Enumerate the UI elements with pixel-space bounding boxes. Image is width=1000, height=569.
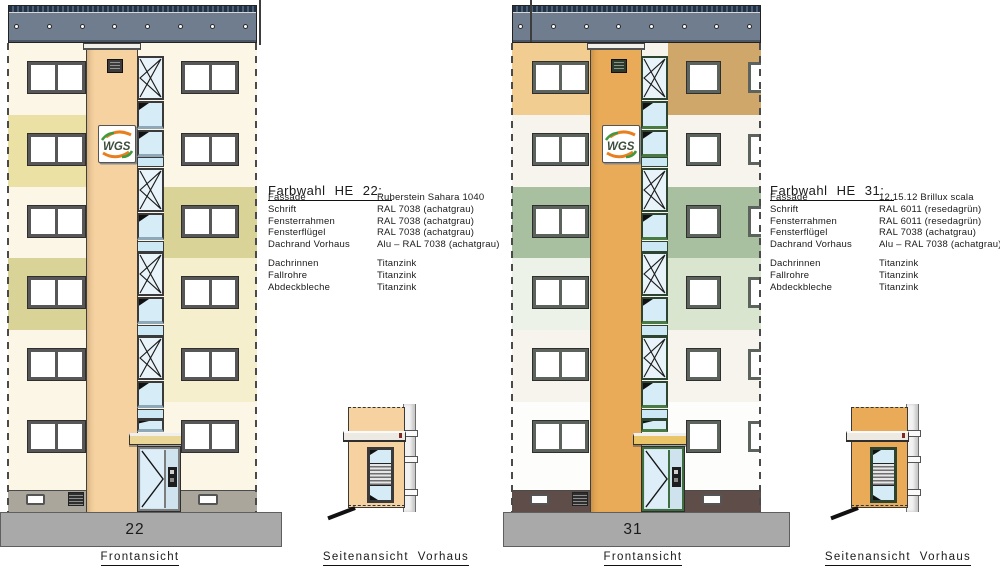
window-square [687,349,720,380]
spec-row-value: RAL 7038 (achatgrau) [879,227,976,239]
window-mullion [209,280,212,305]
window-mullion [209,209,212,234]
spec-row-label: Dachrinnen [268,258,377,270]
spec-row-label: Fensterrahmen [770,216,879,228]
window-mullion [55,280,58,305]
porch-window [870,447,897,503]
house-number: 31 [608,521,658,541]
window-double [28,349,85,380]
spec-row-value: Alu – RAL 7038 (achatgrau) [377,239,500,251]
spec-row-label: Abdeckbleche [770,282,879,294]
window-double [182,206,238,237]
intercom-dot [170,470,174,474]
roof-drain-dot [210,24,215,29]
glyph [643,421,666,429]
spec-row-value: Titanzink [377,282,416,294]
glyph [643,170,666,210]
spec-row-label: Fensterrahmen [268,216,377,228]
window-double [28,206,85,237]
door-intercom-panel [672,467,681,487]
entrance-door [642,447,684,511]
door-intercom-panel [168,467,177,487]
svg-text:WGS: WGS [103,141,131,153]
stair-window-turn [641,252,668,296]
spec-row-value: Titanzink [879,258,918,270]
spec-row: FassadeRuberstein Sahara 1040 [268,192,500,204]
window-mullion [559,280,562,305]
spec-row: Dachrand VorhausAlu – RAL 7038 (achatgra… [770,239,1000,251]
glyph [370,450,391,500]
spec-row-value: Titanzink [879,282,918,294]
wgs-logo: WGS [98,125,136,163]
spec-row-value: RAL 7038 (achatgrau) [377,216,474,228]
glyph [139,338,162,378]
spec-row-value: Ruberstein Sahara 1040 [377,192,484,204]
spec-row-label: Dachrinnen [770,258,879,270]
stair-landing-light [641,409,668,419]
window-square [687,206,720,237]
side-view-label: Seitenansicht Vorhaus [803,551,993,567]
stair-window-fixed [137,419,164,432]
spec-row: FensterflügelRAL 7038 (achatgrau) [770,227,1000,239]
porch-canopy [343,431,406,442]
glyph [643,103,666,126]
stair-landing-light [137,325,164,336]
vent-grid [614,62,624,70]
glyph [643,383,666,405]
roof-drain-dot [616,24,621,29]
front-view-label: Frontansicht [60,551,220,567]
glyph [139,132,162,154]
window-mullion [55,137,58,162]
basement-vent-grille [572,492,588,506]
stair-landing-light [137,409,164,419]
window-double [533,134,588,165]
spec-row: AbdeckblecheTitanzink [268,282,500,294]
spec-row: FensterrahmenRAL 6011 (resedagrün) [770,216,1000,228]
window-square [687,277,720,308]
stair-window-fixed [641,297,668,324]
glyph [141,450,164,508]
spec-row-value: Titanzink [879,270,918,282]
roof-drain-dot [178,24,183,29]
spec-row-value: Titanzink [377,258,416,270]
spec-row: SchriftRAL 7038 (achatgrau) [268,204,500,216]
window-mullion [559,209,562,234]
basement-window [198,494,218,505]
window-mullion [55,65,58,90]
stair-window-turn [641,56,668,100]
facade-edge-dashed-right [759,43,761,512]
stair-window-turn [137,336,164,380]
glyph [139,170,162,210]
elevation-drawing-canvas: Farbwahl HE 22: FassadeRuberstein Sahara… [0,0,1000,569]
roof-drain-dot [649,24,654,29]
window-double [28,62,85,93]
spec-row-value: Alu – RAL 7038 (achatgrau) [879,239,1000,251]
intercom-dot [170,478,174,482]
glyph [643,299,666,321]
basement-window [702,494,722,505]
roof-drain-dot [243,24,248,29]
window-mullion [209,352,212,377]
stair-window-turn [137,168,164,212]
spec-row-label: Fallrohre [268,270,377,282]
spec-row-label: Schrift [770,204,879,216]
stair-window-fixed [641,130,668,157]
front-view-label-text: Frontansicht [101,551,180,566]
window-double [28,134,85,165]
spec-row: SchriftRAL 6011 (resedagrün) [770,204,1000,216]
glyph: WGS [603,126,639,162]
window-square [687,134,720,165]
window-mullion [55,209,58,234]
spec-row-label: Dachrand Vorhaus [770,239,879,251]
ground-slope-tick [830,506,858,520]
glyph [139,215,162,237]
stair-window-fixed [137,381,164,408]
spec-row: Fassade12.15.12 Brillux scala [770,192,1000,204]
glyph: WGS [99,126,135,162]
roof-drain-dot [518,24,523,29]
window-double [533,62,588,93]
spec-row-label: Schrift [268,204,377,216]
intercom-dot [674,478,678,482]
window-double [182,277,238,308]
entrance-canopy [633,433,694,445]
spec-row-label: Dachrand Vorhaus [268,239,377,251]
porch-window [367,447,394,503]
entrance-canopy [129,433,190,445]
basement-vent-grille [68,492,84,506]
spec-row: FallrohreTitanzink [770,270,1000,282]
window-mullion [209,137,212,162]
stair-landing-light [137,241,164,252]
window-mullion [55,424,58,449]
glyph [643,215,666,237]
facade-edge-dashed-right [255,43,257,512]
window-mullion [55,352,58,377]
porch-bottom-dashed [851,505,908,507]
window-double [28,421,85,452]
stair-window-fixed [641,213,668,240]
spec-row: Dachrand VorhausAlu – RAL 7038 (achatgra… [268,239,500,251]
porch-bottom-dashed [348,505,405,507]
spec-row-value: 12.15.12 Brillux scala [879,192,974,204]
roof-edge-hatch [9,6,256,13]
spec-row-label: Abdeckbleche [268,282,377,294]
glyph [139,421,162,429]
window-mullion [209,424,212,449]
intercom-dot [674,470,678,474]
glyph [139,383,162,405]
glyph [139,299,162,321]
roof-drain-dot [47,24,52,29]
roof-drain-dot [551,24,556,29]
window-double [533,349,588,380]
side-view-label-text: Seitenansicht Vorhaus [825,551,971,566]
spec-row-value: RAL 7038 (achatgrau) [377,204,474,216]
spec-row-value: Titanzink [377,270,416,282]
glyph [643,132,666,154]
facade-edge-dashed-left [7,43,9,512]
lightning-rod [259,0,261,45]
side-view-label-text: Seitenansicht Vorhaus [323,551,469,566]
canopy-mark [902,433,905,438]
basement-window [530,494,549,505]
roof-drain-dot [714,24,719,29]
window-mullion [559,424,562,449]
spec-row-label: Fallrohre [770,270,879,282]
glyph [643,58,666,98]
spec-row: DachrinnenTitanzink [268,258,500,270]
tower-cap [587,43,645,50]
basement-window [26,494,45,505]
facade-edge-dashed-left [511,43,513,512]
canopy-mark [399,433,402,438]
stair-window-turn [641,168,668,212]
roof-drain-dot [747,24,752,29]
door-glass [645,450,670,508]
window-double [182,134,238,165]
window-mullion [559,65,562,90]
front-view-label-text: Frontansicht [604,551,683,566]
roof-drain-dot [112,24,117,29]
glyph [643,254,666,294]
stair-window-fixed [641,419,668,432]
window-square [687,421,720,452]
roof-band [8,5,257,43]
stair-window-fixed [137,213,164,240]
window-square [687,62,720,93]
glyph [139,103,162,126]
roof-drain-dot [584,24,589,29]
window-mullion [559,352,562,377]
window-double [533,277,588,308]
stair-window-fixed [641,101,668,129]
spec-row-label: Fensterflügel [770,227,879,239]
stair-landing-light [137,157,164,167]
spec-row-label: Fassade [268,192,377,204]
spec-row-label: Fensterflügel [268,227,377,239]
glyph [645,450,668,508]
window-double [28,277,85,308]
window-double [533,421,588,452]
spec-row-value: RAL 7038 (achatgrau) [377,227,474,239]
door-glass [141,450,166,508]
glyph [643,338,666,378]
entrance-door [138,447,180,511]
window-double [182,421,238,452]
spec-rows-he31: Fassade12.15.12 Brillux scalaSchriftRAL … [770,192,1000,293]
stair-window-fixed [137,297,164,324]
spec-row: AbdeckblecheTitanzink [770,282,1000,294]
roof-band [512,5,761,43]
stair-landing-light [641,157,668,167]
lightning-rod [530,0,532,42]
spec-row: DachrinnenTitanzink [770,258,1000,270]
window-mullion [559,137,562,162]
stair-window-fixed [137,101,164,129]
roof-vent-grille [611,59,627,73]
stair-window-fixed [641,381,668,408]
spec-rows-he22: FassadeRuberstein Sahara 1040SchriftRAL … [268,192,500,293]
window-mullion [209,65,212,90]
roof-vent-grille [107,59,123,73]
roof-drain-dot [682,24,687,29]
spec-row-value: RAL 6011 (resedagrün) [879,204,981,216]
stair-window-turn [137,56,164,100]
stair-window-fixed [137,130,164,157]
glyph [139,254,162,294]
window-double [182,62,238,93]
glyph [873,450,894,500]
house-number: 22 [110,521,160,541]
window-double [182,349,238,380]
spec-row: FallrohreTitanzink [268,270,500,282]
front-view-label: Frontansicht [563,551,723,567]
spec-row-value: RAL 6011 (resedagrün) [879,216,981,228]
svg-text:WGS: WGS [607,141,635,153]
ground-slope-tick [327,506,355,520]
glyph [139,58,162,98]
stair-landing-light [641,325,668,336]
side-view-label: Seitenansicht Vorhaus [301,551,491,567]
roof-drain-dot [145,24,150,29]
vent-grid [110,62,120,70]
window-double [533,206,588,237]
roof-drain-dot [14,24,19,29]
roof-drain-dot [80,24,85,29]
wgs-logo: WGS [602,125,640,163]
stair-window-turn [137,252,164,296]
tower-cap [83,43,141,50]
stair-window-turn [641,336,668,380]
spec-row: FensterflügelRAL 7038 (achatgrau) [268,227,500,239]
spec-row: FensterrahmenRAL 7038 (achatgrau) [268,216,500,228]
spec-row-label: Fassade [770,192,879,204]
porch-canopy [846,431,909,442]
stair-landing-light [641,241,668,252]
roof-edge-hatch [513,6,760,13]
